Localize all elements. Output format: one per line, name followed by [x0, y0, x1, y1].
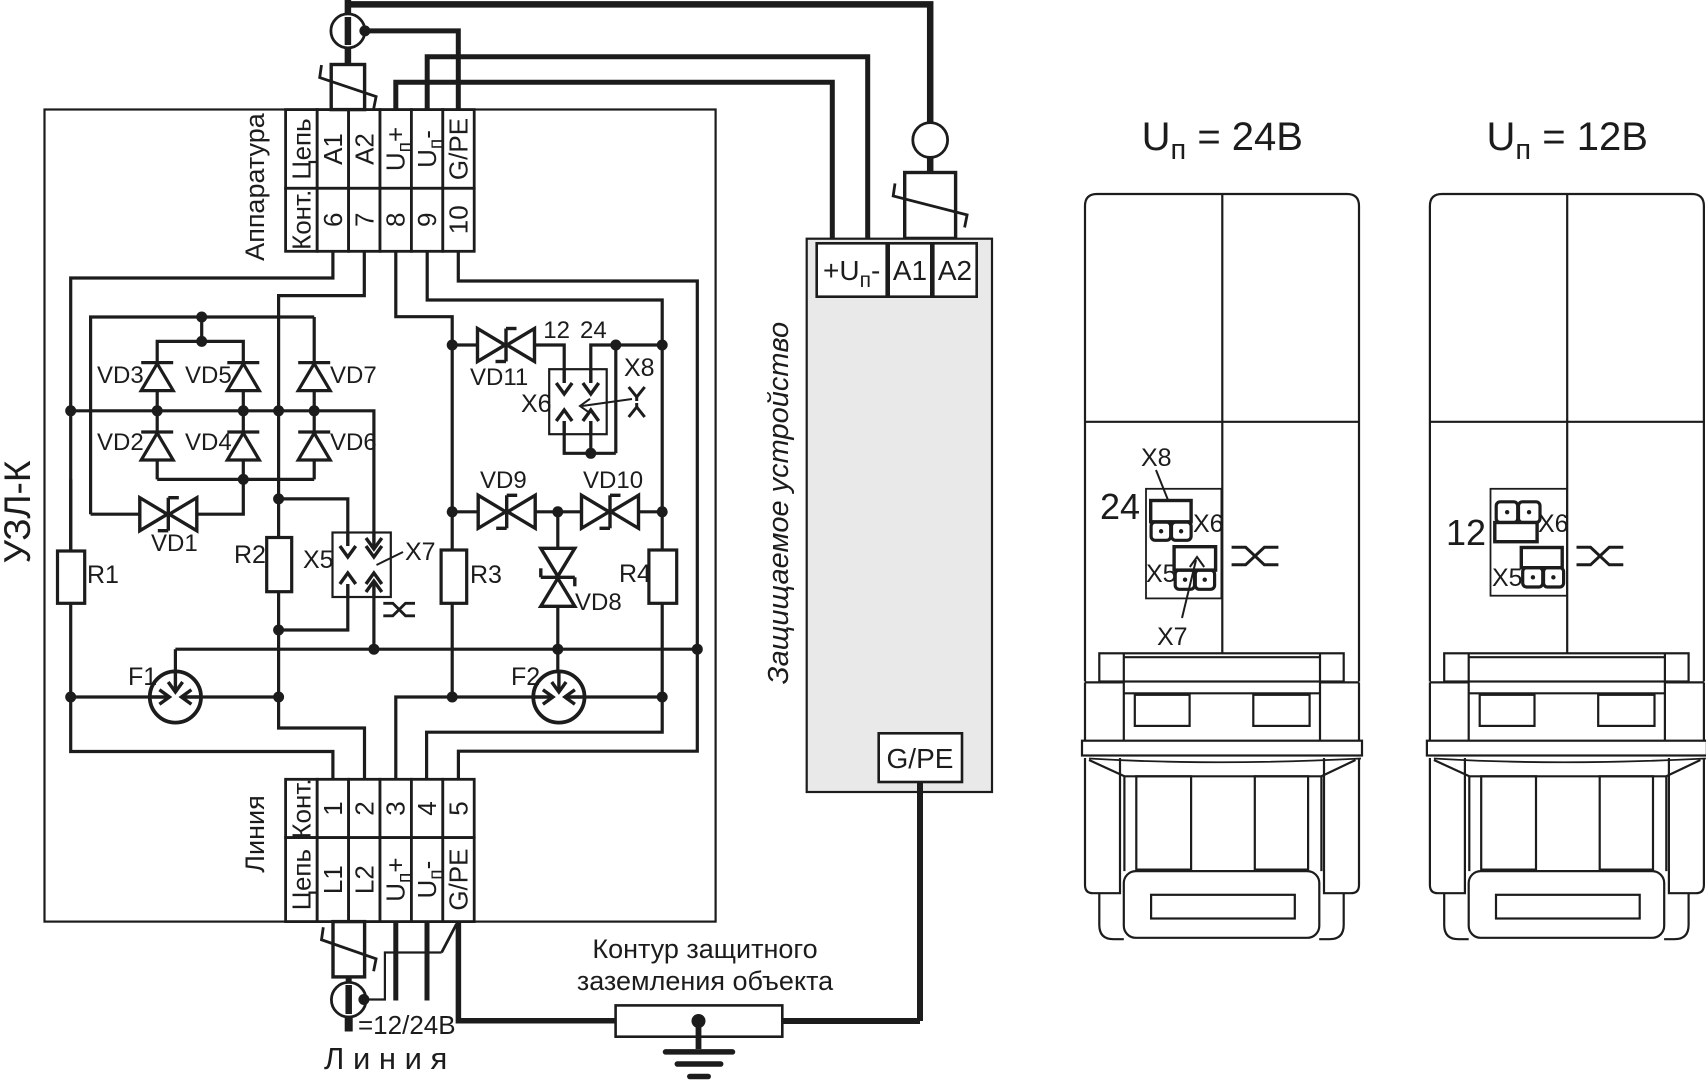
svg-text:Uп = 24В: Uп = 24В [1142, 115, 1303, 166]
svg-text:8: 8 [381, 213, 411, 227]
svg-text:A2: A2 [349, 133, 379, 165]
svg-text:Конт.: Конт. [286, 190, 316, 250]
svg-text:2: 2 [349, 801, 379, 815]
svg-text:VD4: VD4 [185, 429, 232, 456]
svg-text:12: 12 [543, 317, 570, 344]
svg-text:4: 4 [412, 801, 442, 815]
svg-text:R3: R3 [470, 561, 502, 589]
svg-text:Л и н и я: Л и н и я [324, 1041, 447, 1076]
svg-text:F1: F1 [128, 663, 157, 691]
svg-text:A1: A1 [893, 255, 927, 286]
svg-text:=12/24В: =12/24В [358, 1010, 456, 1040]
svg-text:VD7: VD7 [330, 362, 377, 389]
svg-text:Цепь: Цепь [286, 118, 316, 179]
svg-text:1: 1 [318, 801, 348, 815]
svg-text:9: 9 [412, 213, 442, 227]
svg-text:Контур защитного: Контур защитного [592, 934, 817, 964]
svg-text:10: 10 [444, 205, 474, 234]
svg-text:X6: X6 [1193, 510, 1224, 538]
svg-text:VD3: VD3 [97, 362, 144, 389]
svg-text:VD1: VD1 [151, 530, 198, 557]
svg-text:Конт.: Конт. [286, 778, 316, 838]
svg-text:X5: X5 [1146, 560, 1177, 588]
svg-text:X8: X8 [1141, 444, 1172, 472]
svg-text:VD10: VD10 [583, 467, 643, 494]
svg-text:X5: X5 [303, 546, 334, 574]
svg-text:VD11: VD11 [470, 364, 528, 391]
svg-text:R2: R2 [234, 541, 266, 569]
svg-text:VD8: VD8 [575, 589, 622, 616]
svg-text:R1: R1 [87, 561, 119, 589]
svg-text:F2: F2 [511, 663, 540, 691]
svg-text:X8: X8 [624, 354, 655, 382]
svg-text:X7: X7 [1157, 623, 1188, 651]
svg-text:R4: R4 [619, 560, 651, 588]
svg-text:X6: X6 [1538, 510, 1569, 538]
svg-text:3: 3 [381, 801, 411, 815]
svg-text:X6: X6 [521, 390, 552, 418]
svg-text:G/PE: G/PE [444, 849, 474, 911]
svg-text:VD9: VD9 [480, 467, 527, 494]
svg-text:VD5: VD5 [185, 362, 232, 389]
svg-text:X7: X7 [405, 538, 436, 566]
svg-text:Uп = 12В: Uп = 12В [1487, 115, 1648, 166]
svg-text:Аппаратура: Аппаратура [240, 112, 270, 261]
svg-text:12: 12 [1446, 512, 1486, 553]
svg-text:VD2: VD2 [97, 429, 144, 456]
svg-text:VD6: VD6 [330, 429, 377, 456]
svg-text:УЗЛ-К: УЗЛ-К [0, 460, 38, 563]
svg-text:24: 24 [1100, 486, 1140, 527]
svg-text:L2: L2 [349, 865, 379, 894]
svg-text:Цепь: Цепь [286, 849, 316, 910]
svg-text:5: 5 [444, 801, 474, 815]
svg-text:A1: A1 [318, 133, 348, 165]
svg-text:Линия: Линия [240, 795, 270, 872]
svg-text:6: 6 [318, 213, 348, 227]
svg-text:G/PE: G/PE [887, 743, 954, 774]
svg-text:7: 7 [349, 213, 379, 227]
svg-text:заземления объекта: заземления объекта [577, 966, 834, 996]
svg-text:G/PE: G/PE [444, 118, 474, 180]
svg-text:X5: X5 [1492, 564, 1523, 592]
svg-text:Защищаемое устройство: Защищаемое устройство [763, 322, 795, 684]
svg-text:A2: A2 [938, 255, 972, 286]
svg-text:24: 24 [580, 317, 607, 344]
svg-text:L1: L1 [318, 865, 348, 894]
